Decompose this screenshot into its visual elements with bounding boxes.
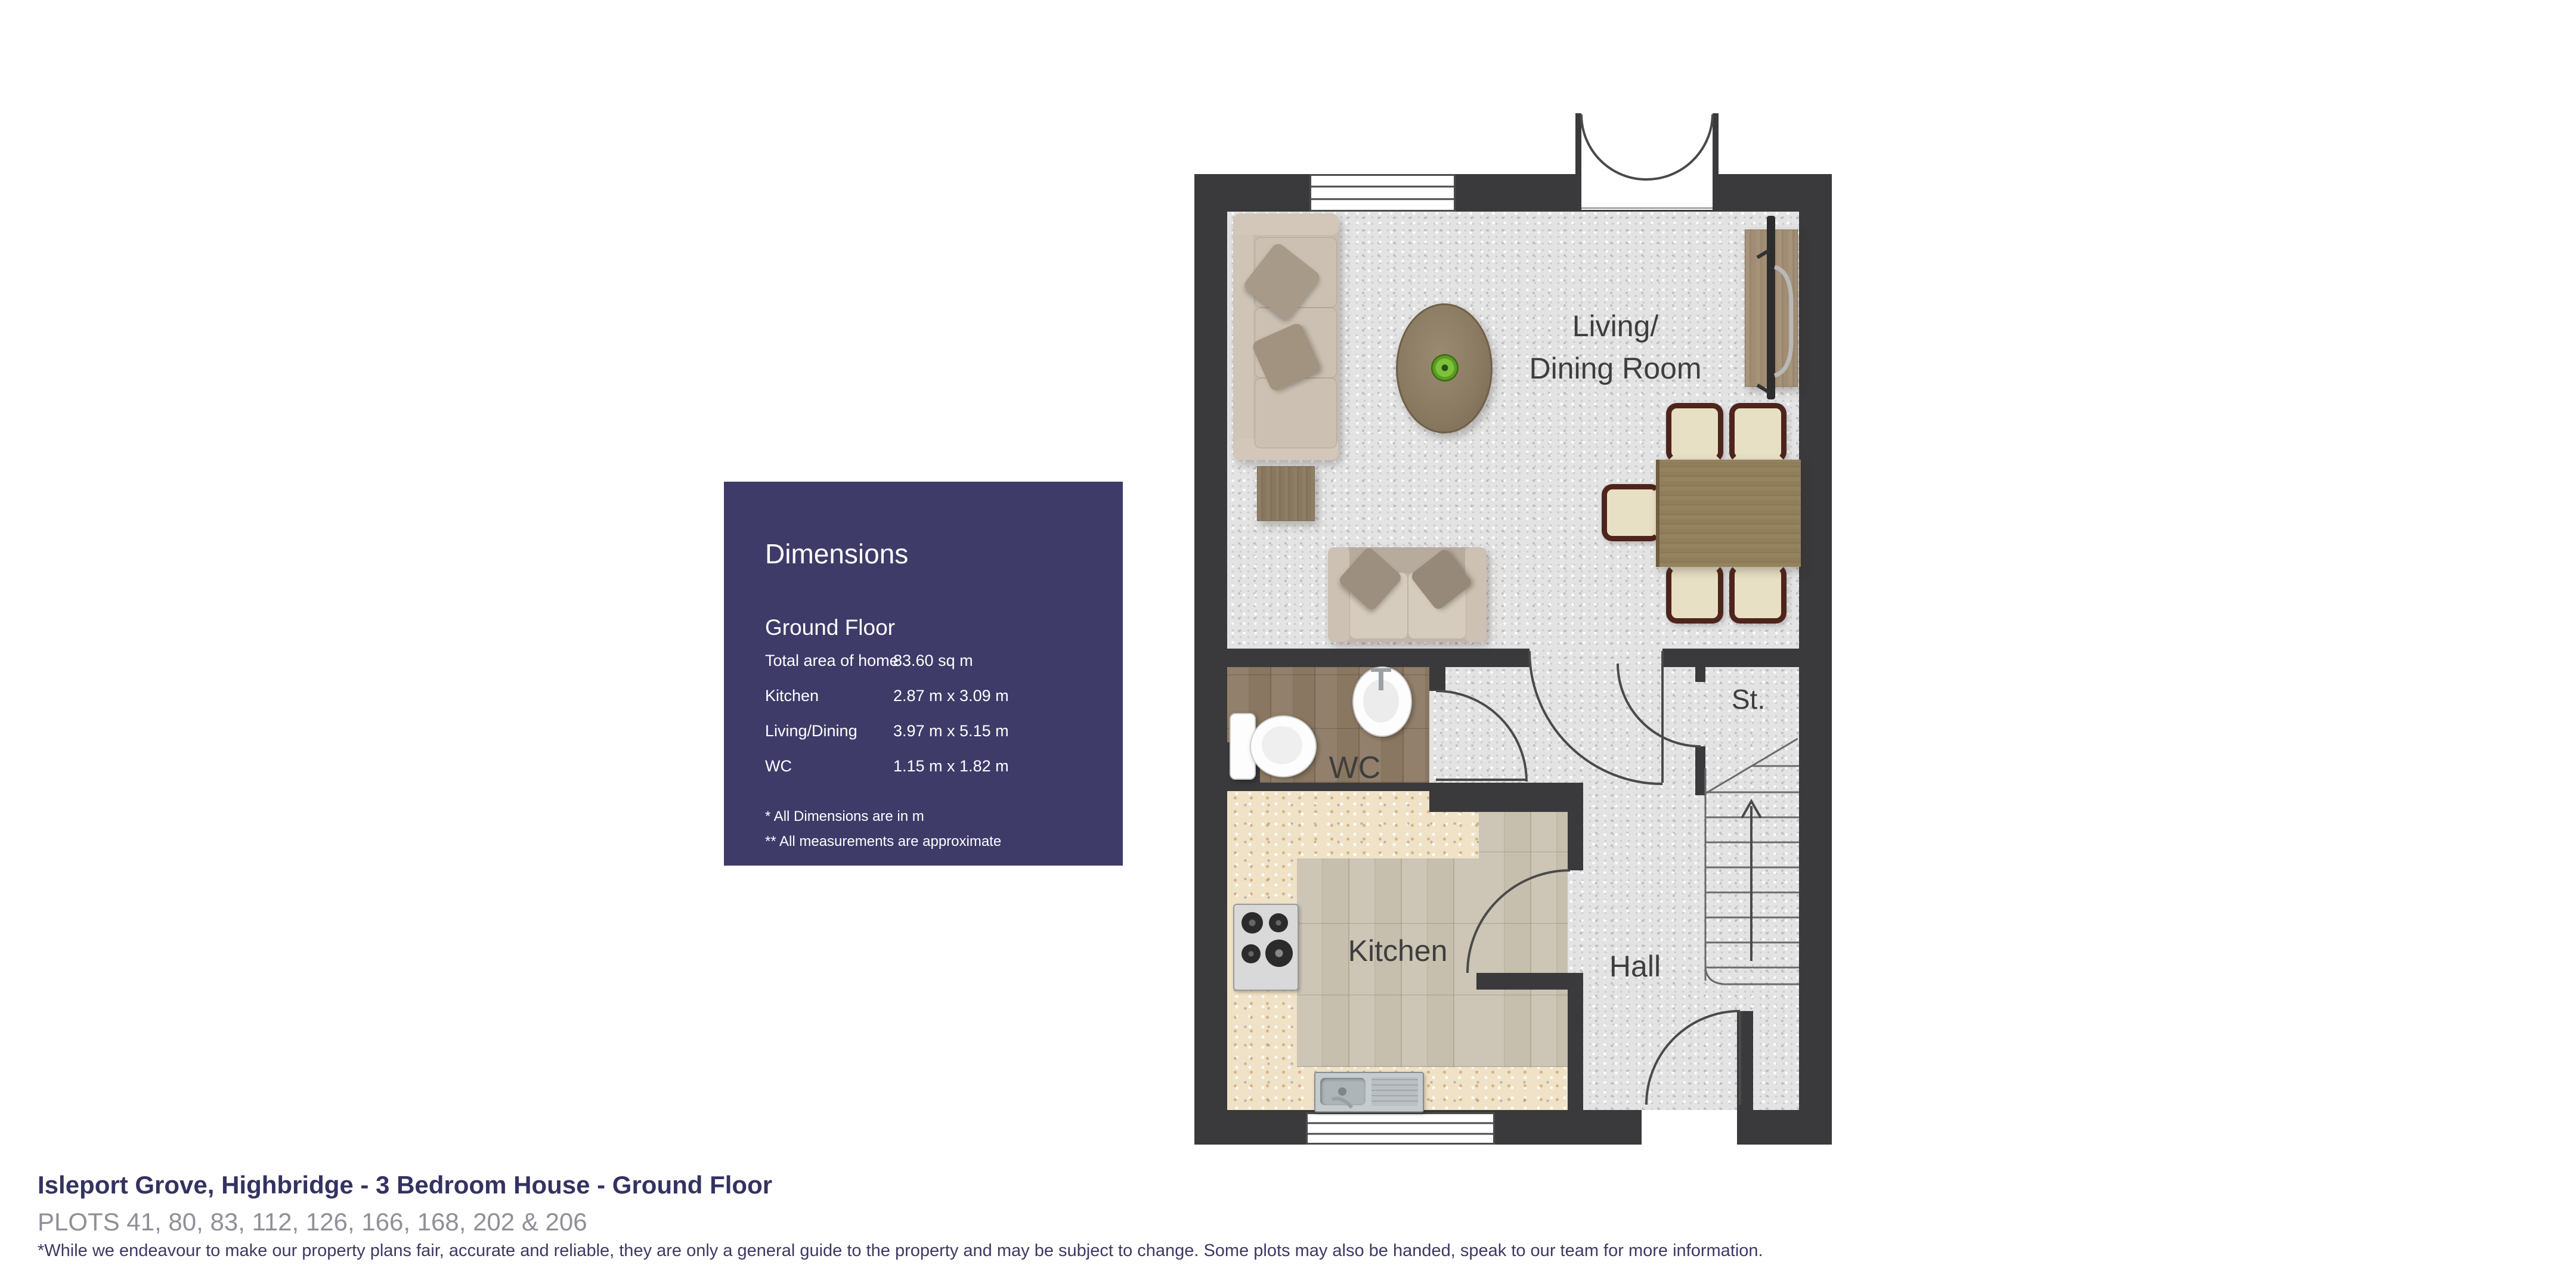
dimension-row-value: 83.60 sq m (893, 652, 973, 670)
room-label-living-line2: Dining Room (1496, 348, 1735, 390)
disclaimer: *While we endeavour to make our property… (38, 1241, 1763, 1261)
room-label-kitchen: Kitchen (1308, 934, 1487, 968)
dimension-row-label: Living/Dining (765, 722, 857, 740)
panel-footnote: * All Dimensions are in m (765, 808, 924, 825)
dimension-row-label: WC (765, 757, 792, 776)
dimensions-panel: Dimensions Ground Floor Total area of ho… (724, 482, 1123, 866)
plots-subtitle: PLOTS 41, 80, 83, 112, 126, 166, 168, 20… (38, 1208, 587, 1236)
dimension-row-value: 1.15 m x 1.82 m (893, 757, 1009, 776)
dimension-row-label: Kitchen (765, 687, 819, 705)
panel-section: Ground Floor (765, 615, 895, 640)
room-label-wc: WC (1295, 750, 1414, 786)
dimension-row-value: 2.87 m x 3.09 m (893, 687, 1009, 705)
room-label-hall: Hall (1575, 949, 1695, 984)
dimension-row-value: 3.97 m x 5.15 m (893, 722, 1009, 740)
plan-linework (0, 0, 2576, 1265)
panel-footnote: ** All measurements are approximate (765, 833, 1001, 850)
floorplan-page: Living/ Dining Room Kitchen Hall WC St. … (0, 0, 2576, 1265)
dimension-row-label: Total area of home (765, 652, 899, 670)
room-label-storage: St. (1707, 683, 1790, 715)
room-label-living: Living/ Dining Room (1496, 305, 1735, 390)
panel-title: Dimensions (765, 538, 908, 570)
room-label-living-line1: Living/ (1496, 305, 1735, 348)
page-title: Isleport Grove, Highbridge - 3 Bedroom H… (38, 1171, 772, 1199)
